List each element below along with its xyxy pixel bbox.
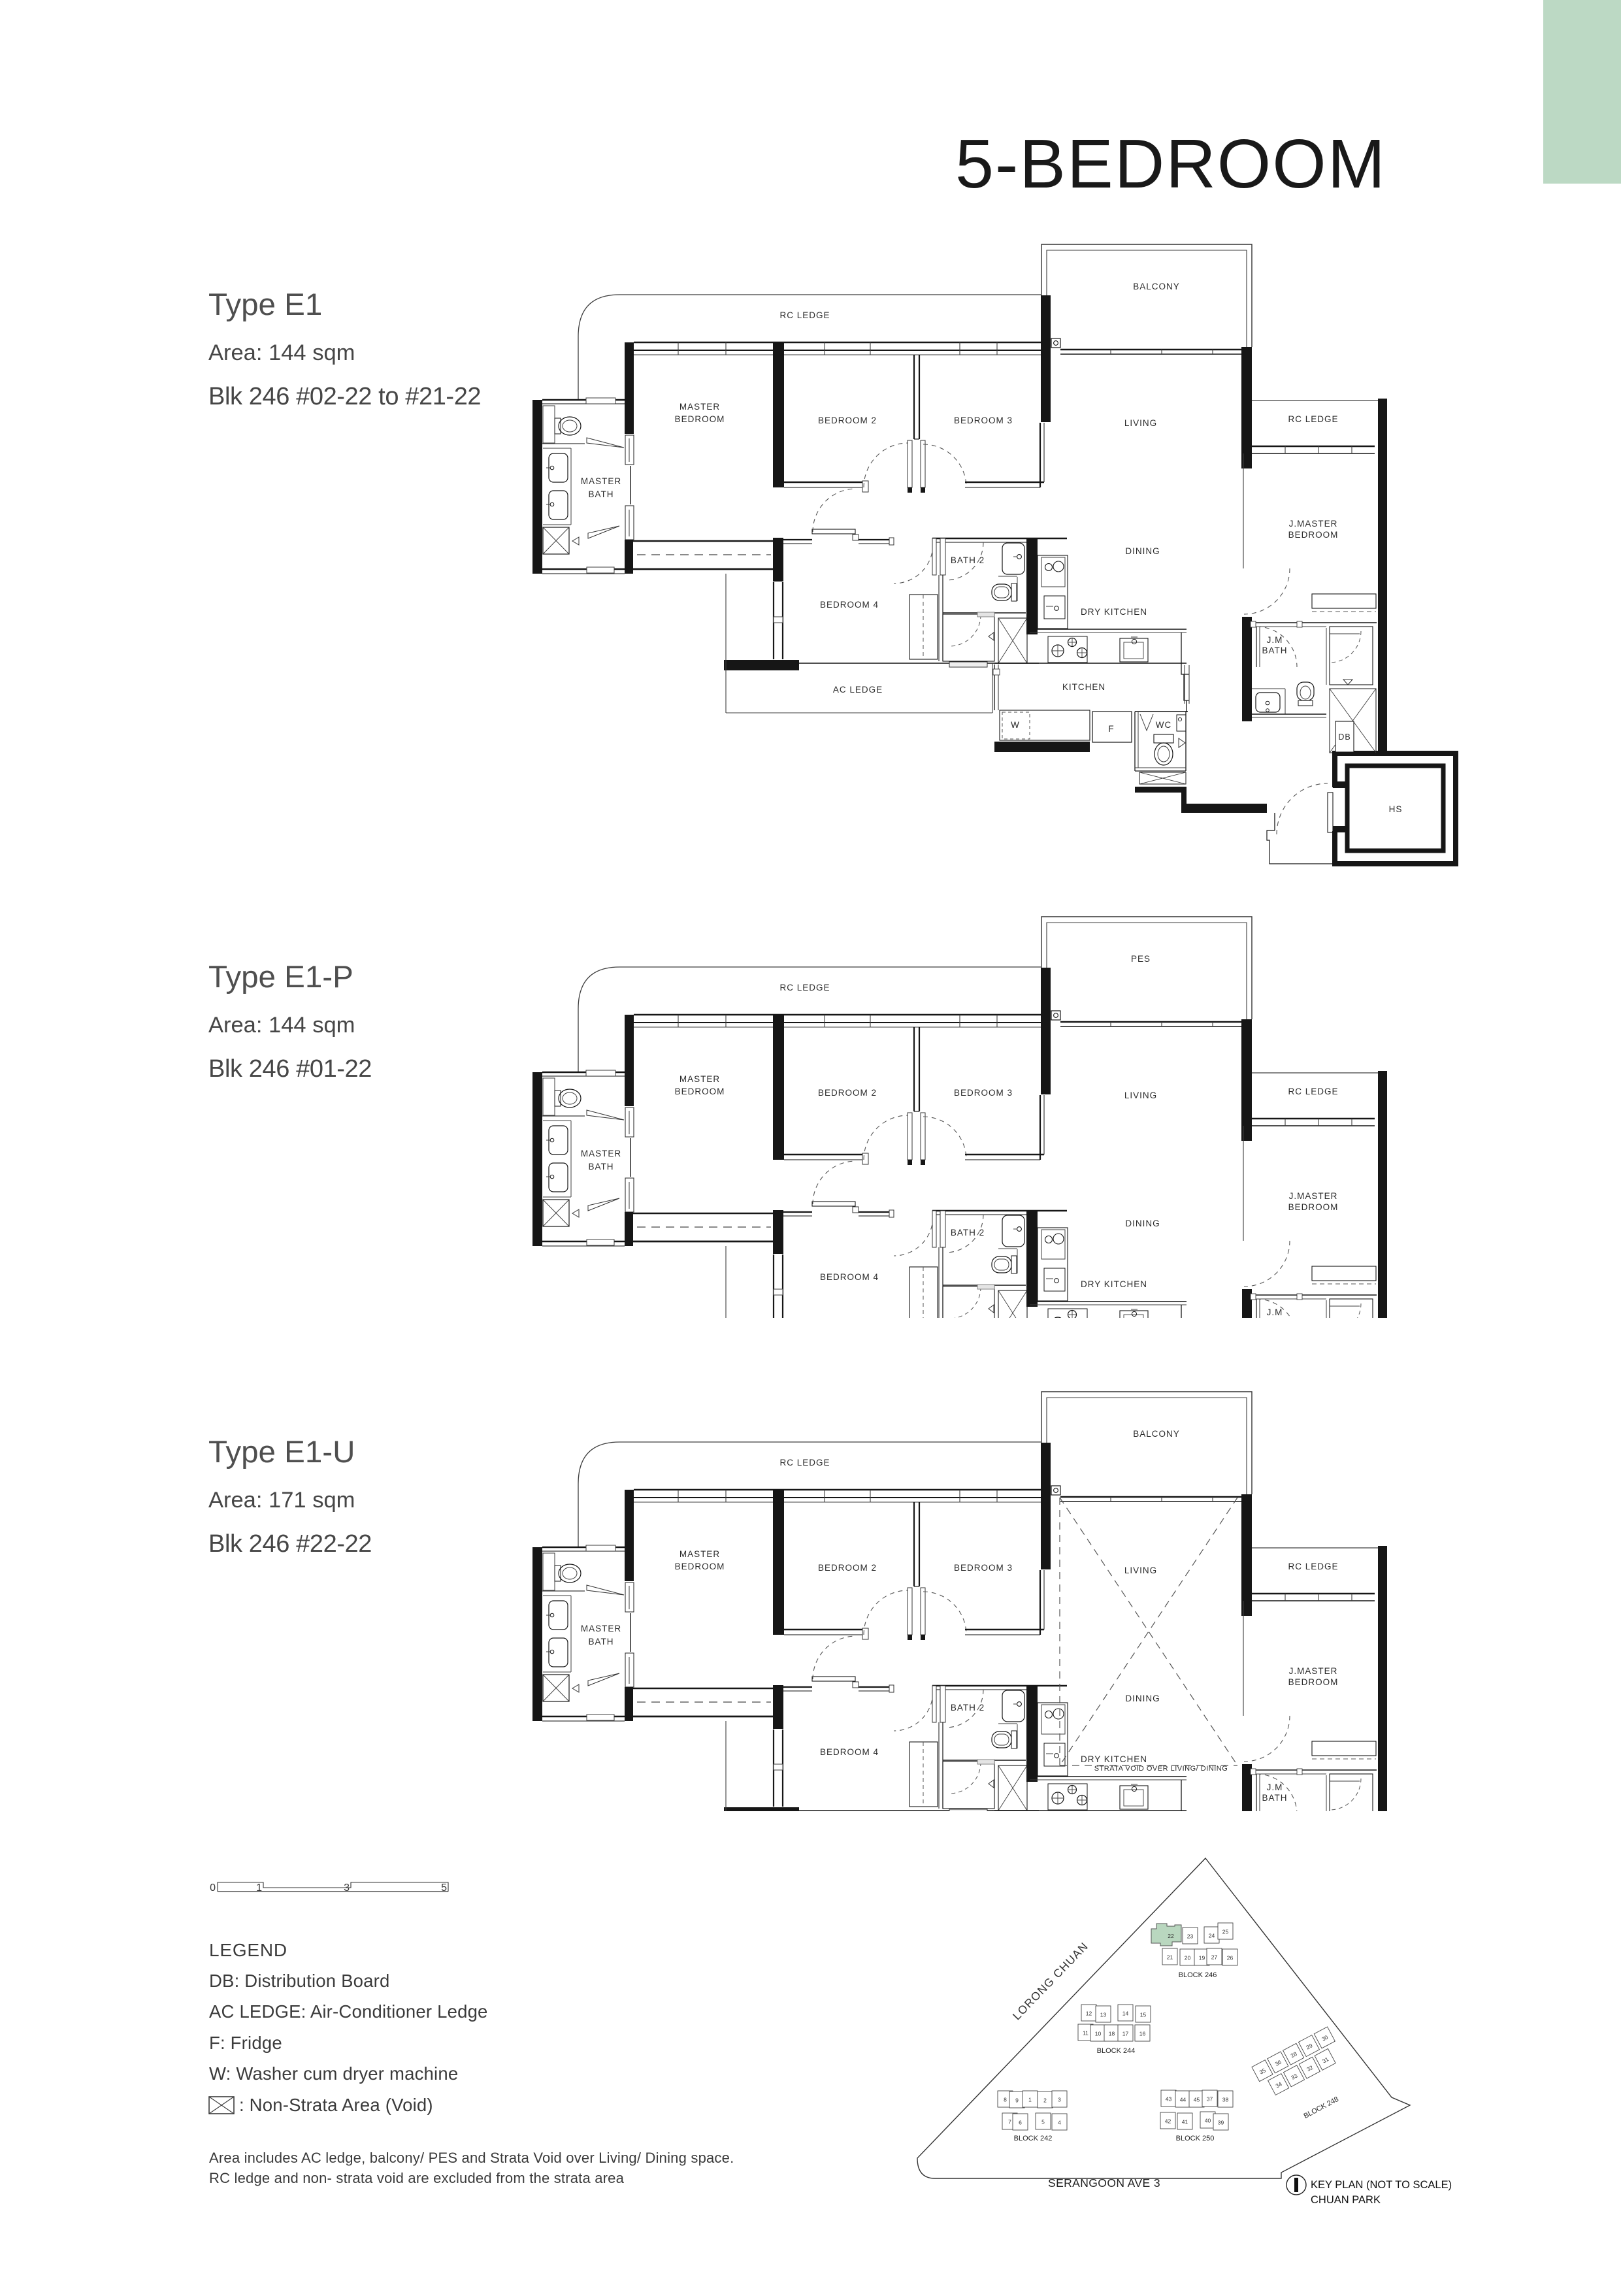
svg-text:40: 40: [1205, 2118, 1211, 2124]
svg-text:17: 17: [1122, 2031, 1129, 2037]
svg-text:Area includes AC ledge, balcon: Area includes AC ledge, balcony/ PES and…: [209, 2150, 734, 2166]
svg-text:SERANGOON AVE 3: SERANGOON AVE 3: [1048, 2176, 1160, 2189]
svg-text:BALCONY: BALCONY: [1133, 282, 1180, 291]
svg-text:: Non-Strata Area (Void): : Non-Strata Area (Void): [239, 2095, 433, 2115]
svg-text:3: 3: [1058, 2097, 1061, 2103]
svg-text:18: 18: [1109, 2031, 1115, 2037]
svg-text:45: 45: [1194, 2097, 1200, 2103]
svg-text:STRATA VOID OVER LIVING/ DININ: STRATA VOID OVER LIVING/ DINING: [1094, 1765, 1228, 1773]
svg-text:0: 0: [210, 1882, 216, 1894]
svg-text:BLOCK 250: BLOCK 250: [1176, 2135, 1215, 2142]
svg-text:24: 24: [1209, 1933, 1215, 1939]
svg-text:37: 37: [1207, 2096, 1213, 2103]
svg-text:AC LEDGE: Air-Conditioner Ledg: AC LEDGE: Air-Conditioner Ledge: [209, 2001, 488, 2022]
svg-text:W: Washer cum dryer machine: W: Washer cum dryer machine: [209, 2063, 458, 2084]
svg-text:7: 7: [1008, 2119, 1011, 2125]
svg-text:1: 1: [1028, 2097, 1032, 2103]
svg-text:10: 10: [1095, 2031, 1102, 2037]
svg-text:41: 41: [1182, 2119, 1188, 2125]
svg-text:25: 25: [1222, 1929, 1229, 1935]
svg-text:F: Fridge: F: Fridge: [209, 2033, 282, 2053]
svg-text:KEY PLAN (NOT TO SCALE): KEY PLAN (NOT TO SCALE): [1311, 2179, 1452, 2191]
svg-text:8: 8: [1004, 2097, 1007, 2103]
svg-text:Blk 246 #22-22: Blk 246 #22-22: [208, 1530, 372, 1558]
svg-text:43: 43: [1166, 2096, 1172, 2103]
svg-text:20: 20: [1185, 1955, 1191, 1961]
svg-text:16: 16: [1139, 2031, 1146, 2037]
svg-text:RC ledge and non- strata void: RC ledge and non- strata void are exclud…: [209, 2170, 625, 2186]
svg-text:23: 23: [1187, 1933, 1194, 1940]
svg-text:2: 2: [1043, 2097, 1047, 2104]
svg-text:5: 5: [1041, 2119, 1045, 2125]
svg-text:Blk 246 #01-22: Blk 246 #01-22: [208, 1055, 372, 1083]
svg-text:BLOCK 246: BLOCK 246: [1179, 1971, 1217, 1979]
svg-text:BLOCK 242: BLOCK 242: [1014, 2135, 1053, 2142]
svg-text:Area: 144 sqm: Area: 144 sqm: [208, 340, 355, 365]
svg-text:38: 38: [1222, 2097, 1229, 2103]
svg-text:6: 6: [1019, 2120, 1022, 2126]
svg-text:BLOCK 244: BLOCK 244: [1097, 2047, 1136, 2055]
svg-text:19: 19: [1199, 1955, 1205, 1961]
svg-text:15: 15: [1140, 2012, 1147, 2018]
svg-text:DB: Distribution Board: DB: Distribution Board: [209, 1971, 389, 1991]
svg-text:13: 13: [1100, 2012, 1107, 2018]
svg-text:Type E1: Type E1: [208, 287, 322, 322]
svg-text:26: 26: [1227, 1955, 1234, 1961]
svg-text:4: 4: [1058, 2120, 1061, 2126]
svg-text:LORONG CHUAN: LORONG CHUAN: [1010, 1939, 1091, 2022]
svg-text:42: 42: [1165, 2118, 1171, 2125]
svg-text:11: 11: [1083, 2030, 1089, 2037]
svg-text:12: 12: [1086, 2010, 1092, 2017]
svg-text:Type E1-U: Type E1-U: [208, 1435, 355, 1469]
svg-text:CHUAN PARK: CHUAN PARK: [1311, 2194, 1381, 2206]
svg-text:Area: 171 sqm: Area: 171 sqm: [208, 1488, 355, 1513]
svg-text:LEGEND: LEGEND: [209, 1940, 287, 1960]
svg-text:Blk 246 #02-22 to #21-22: Blk 246 #02-22 to #21-22: [208, 383, 481, 410]
svg-text:27: 27: [1211, 1954, 1218, 1961]
svg-text:9: 9: [1015, 2097, 1019, 2104]
svg-text:21: 21: [1167, 1954, 1173, 1961]
svg-text:22: 22: [1168, 1933, 1174, 1939]
svg-text:44: 44: [1180, 2097, 1187, 2103]
svg-text:BLOCK 248: BLOCK 248: [1303, 2095, 1340, 2120]
svg-text:Type E1-P: Type E1-P: [208, 960, 353, 994]
svg-text:14: 14: [1122, 2010, 1129, 2017]
svg-text:Area: 144 sqm: Area: 144 sqm: [208, 1013, 355, 1038]
svg-text:39: 39: [1218, 2120, 1224, 2126]
svg-text:BALCONY: BALCONY: [1133, 1429, 1180, 1439]
svg-text:5-BEDROOM: 5-BEDROOM: [955, 125, 1386, 203]
svg-text:PES: PES: [1131, 954, 1151, 964]
